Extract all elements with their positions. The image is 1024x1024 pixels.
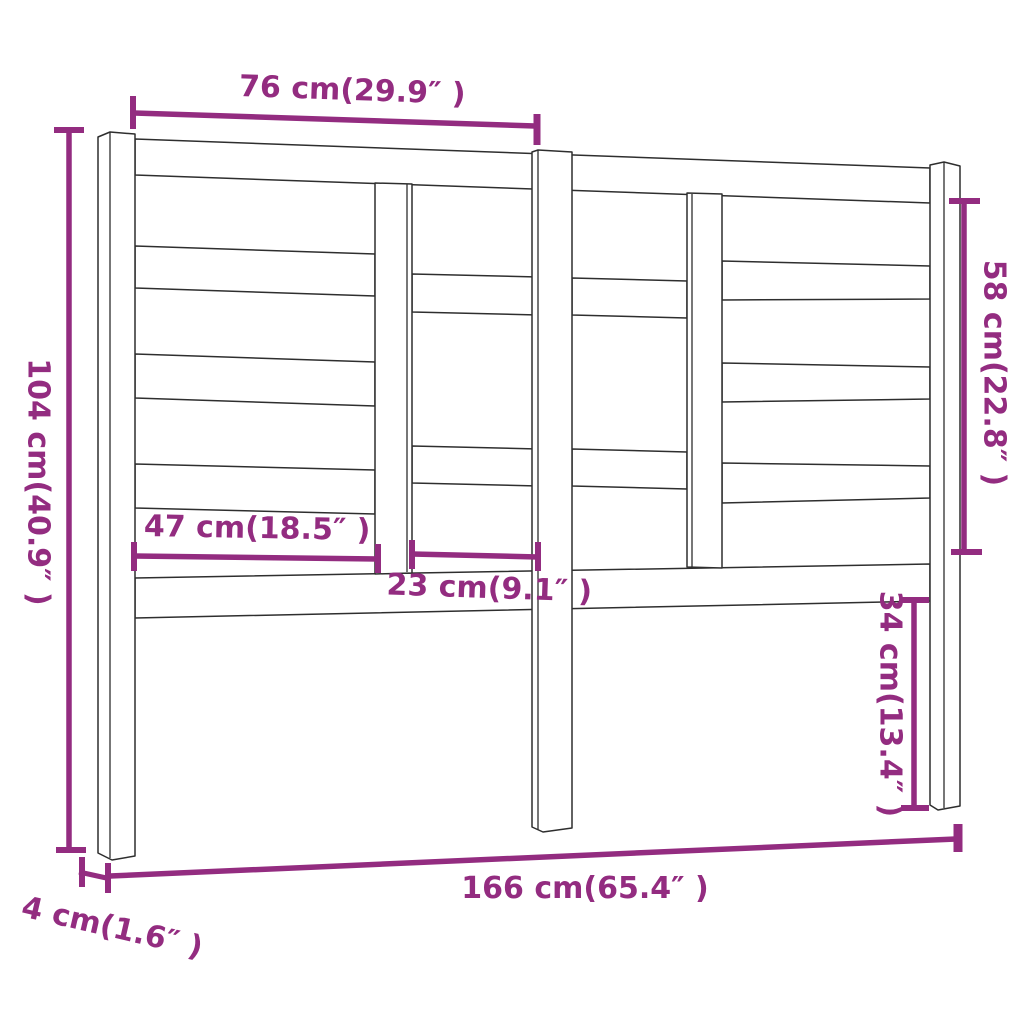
slat <box>722 463 930 503</box>
dim-top-width: 76 cm(29.9″ ) <box>133 69 537 145</box>
dim-left-opening-width: 47 cm(18.5″ ) <box>134 509 378 573</box>
dim-total-width: 166 cm(65.4″ ) <box>110 824 958 906</box>
left-post <box>98 132 135 860</box>
dim-center-opening-width-label: 23 cm(9.1″ ) <box>386 567 593 609</box>
diagram-canvas: 76 cm(29.9″ ) 104 cm(40.9″ ) 58 cm(22.8″… <box>0 0 1024 1024</box>
slat <box>135 354 375 406</box>
dim-leg-height: 34 cm(13.4″ ) <box>872 591 929 818</box>
slat <box>572 278 687 318</box>
slat <box>572 449 687 489</box>
slat <box>722 363 930 402</box>
dim-total-width-label: 166 cm(65.4″ ) <box>461 871 708 906</box>
slat <box>722 261 930 300</box>
dim-left-opening-width-label: 47 cm(18.5″ ) <box>144 509 371 548</box>
dim-depth-label: 4 cm(1.6″ ) <box>18 890 206 966</box>
slat <box>412 274 538 315</box>
headboard-drawing <box>98 132 960 860</box>
headboard-dimension-diagram: 76 cm(29.9″ ) 104 cm(40.9″ ) 58 cm(22.8″… <box>0 0 1024 1024</box>
slat <box>412 446 538 486</box>
right-post <box>930 162 960 810</box>
dim-slat-panel-height-label: 58 cm(22.8″ ) <box>976 260 1011 487</box>
slat <box>135 246 375 296</box>
dim-top-width-label: 76 cm(29.9″ ) <box>239 69 467 112</box>
dim-total-height: 104 cm(40.9″ ) <box>20 130 86 850</box>
dim-leg-height-label: 34 cm(13.4″ ) <box>872 591 907 818</box>
slat <box>135 464 375 514</box>
dim-total-height-label: 104 cm(40.9″ ) <box>20 358 55 605</box>
dimension-annotations: 76 cm(29.9″ ) 104 cm(40.9″ ) 58 cm(22.8″… <box>18 69 1011 965</box>
